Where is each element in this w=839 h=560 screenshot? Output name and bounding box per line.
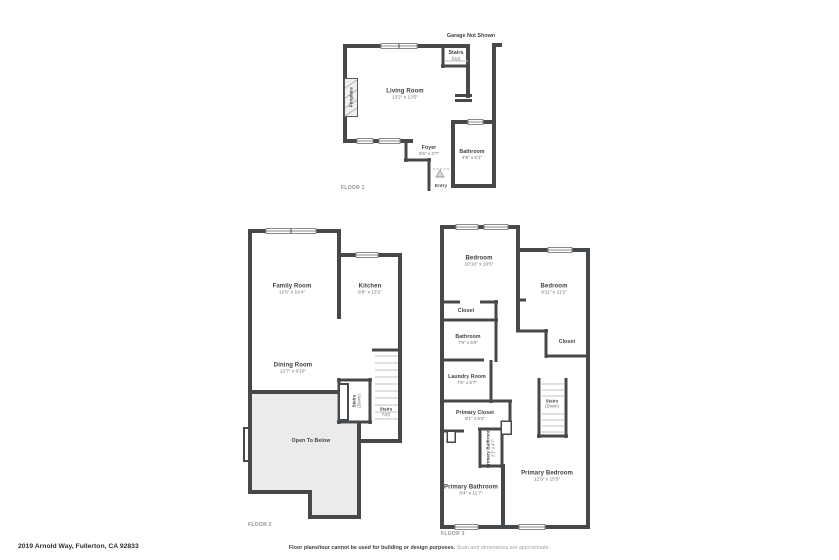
disclaimer-main: Floor plans/tour cannot be used for buil… [289, 545, 455, 551]
floor3-walls [440, 225, 590, 529]
floor1-label: FLOOR 1 [341, 185, 365, 191]
entry-marker-icon [433, 169, 449, 177]
floor3-windows [455, 225, 572, 530]
floor3-label: FLOOR 3 [441, 531, 465, 537]
floor2-stairs-treads [375, 356, 398, 419]
disclaimer-text: Floor plans/tour cannot be used for buil… [289, 545, 550, 551]
fireplace-icon [345, 79, 358, 117]
floor-plan-page: Garage Not Shown Stairs (Up) Living Room… [0, 0, 839, 560]
floor2-label: FLOOR 2 [248, 522, 272, 528]
floor-plan-graphic [0, 0, 839, 560]
floor1-windows [357, 44, 483, 144]
floor1-walls [343, 43, 502, 191]
property-address: 2019 Arnold Way, Fullerton, CA 92833 [18, 543, 139, 550]
disclaimer-sub: Scan and dimensions are approximate. [457, 545, 551, 551]
floor3-stairs-treads [542, 384, 565, 432]
